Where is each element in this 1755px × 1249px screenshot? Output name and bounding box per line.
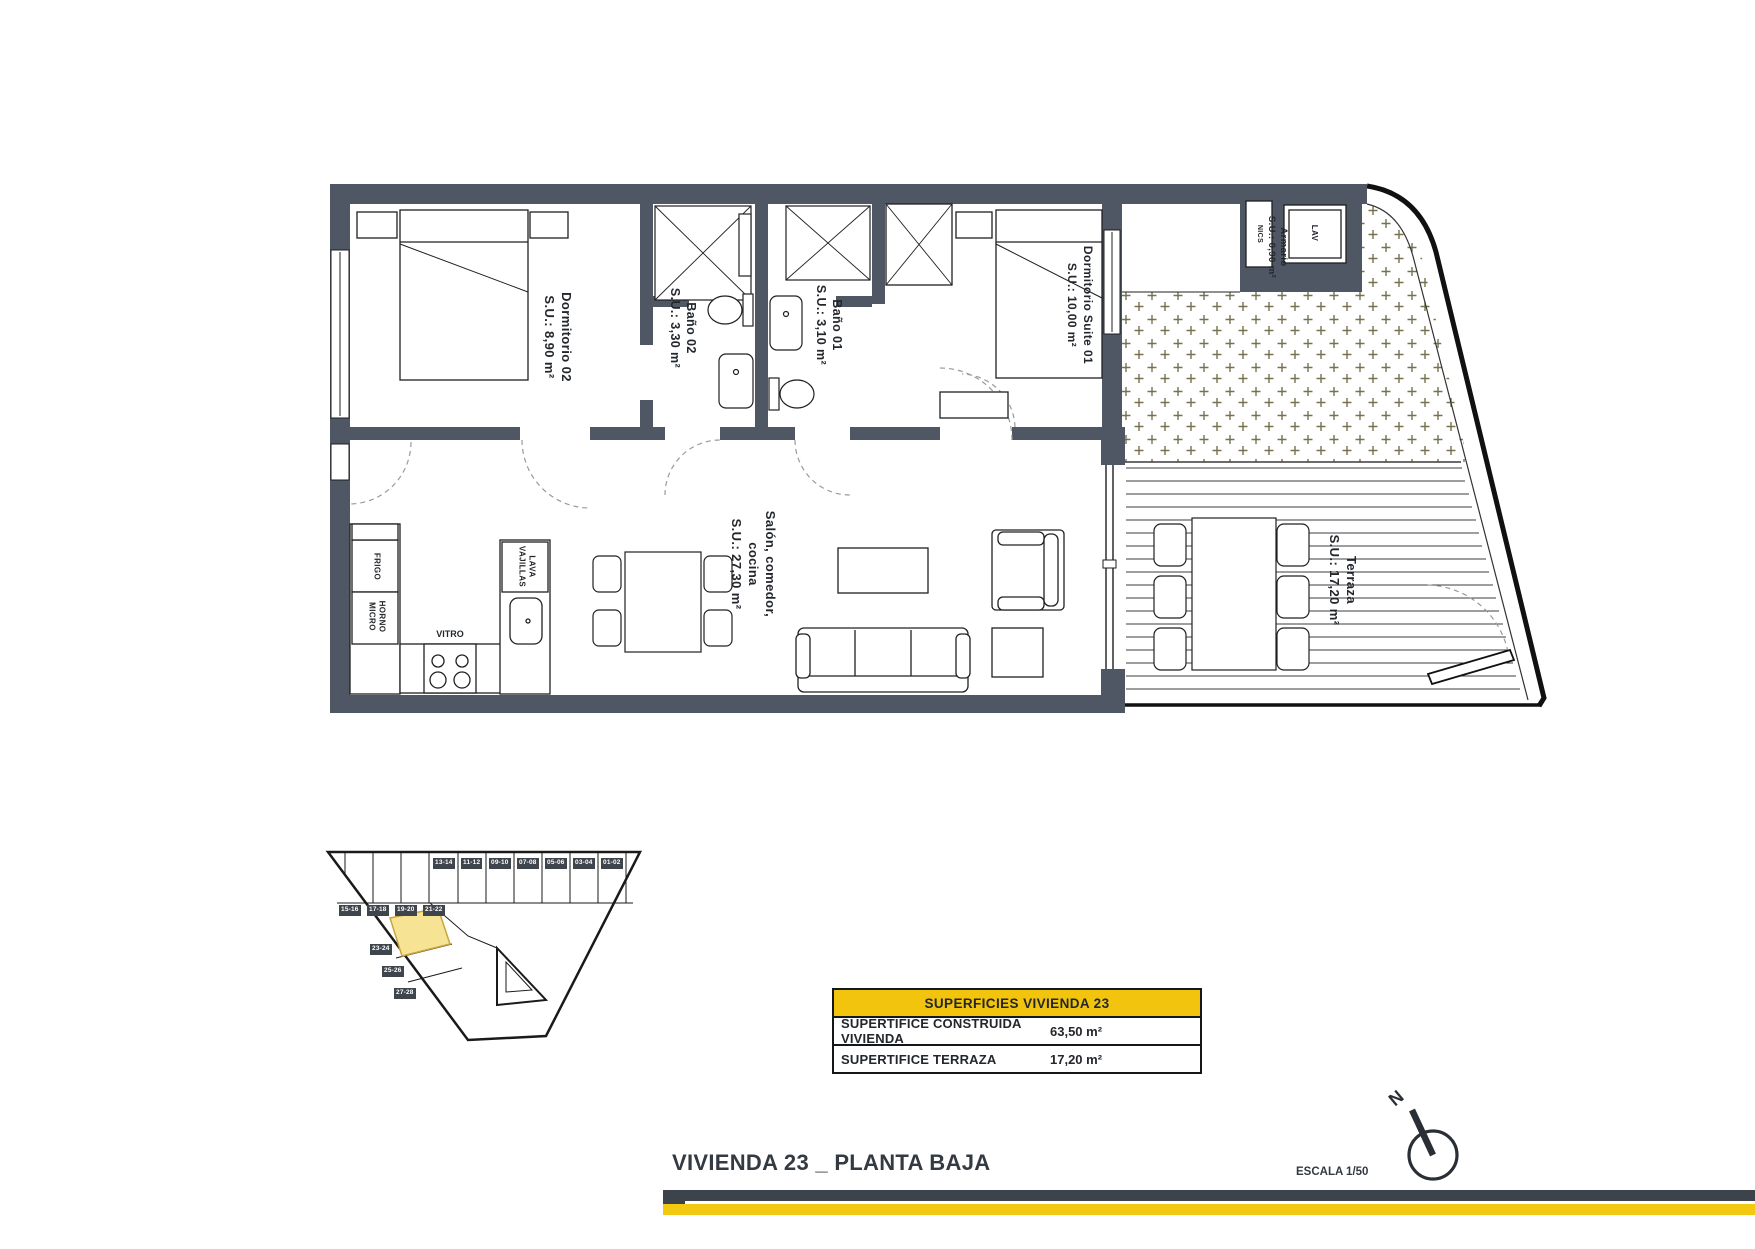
room-label-bano02: Baño 02S.U.: 3,30 m² bbox=[665, 273, 699, 383]
site-unit-tag: 23-24 bbox=[370, 944, 392, 955]
room-label-salon: Salón, comedor,cocinaS.U.: 27,30 m² bbox=[728, 494, 778, 634]
room-label-terraza: TerrazaS.U.: 17,20 m² bbox=[1325, 510, 1359, 650]
living-furniture bbox=[796, 530, 1064, 692]
washer-label: LAV bbox=[1309, 213, 1319, 253]
scale-label: ESCALA 1/50 bbox=[1296, 1166, 1368, 1178]
site-unit-tag: 01-02 bbox=[601, 858, 623, 869]
table-row: SUPERTIFICE CONSTRUIDA VIVIENDA 63,50 m² bbox=[834, 1018, 1200, 1044]
room-label-bano01: Baño 01S.U.: 3,10 m² bbox=[811, 270, 845, 380]
room-label-dormitorio02: Dormitorio 02S.U.: 8,90 m² bbox=[540, 267, 574, 407]
row-value: 17,20 m² bbox=[1050, 1052, 1200, 1067]
footer-bar-dark bbox=[663, 1190, 1755, 1201]
site-unit-tag: 13-14 bbox=[433, 858, 455, 869]
bedroom2-furniture bbox=[357, 210, 568, 380]
niche-label: NICS bbox=[1254, 209, 1264, 259]
site-unit-tag: 15-16 bbox=[339, 905, 361, 916]
summary-table-header: SUPERFICIES VIVIENDA 23 bbox=[834, 990, 1200, 1018]
plan-sheet: Dormitorio 02S.U.: 8,90 m² Baño 02S.U.: … bbox=[0, 0, 1755, 1249]
site-unit-tag: 09-10 bbox=[489, 858, 511, 869]
oven-micro-label: HORNOMICRO bbox=[366, 587, 387, 647]
site-unit-tag: 17-18 bbox=[367, 905, 389, 916]
terrace-set bbox=[1154, 518, 1309, 670]
site-unit-tag: 07-08 bbox=[517, 858, 539, 869]
room-label-armario: ArmarioS.U.: 0,90 m² bbox=[1261, 197, 1289, 297]
row-value: 63,50 m² bbox=[1050, 1024, 1200, 1039]
site-unit-tag: 21-22 bbox=[423, 905, 445, 916]
row-label: SUPERTIFICE CONSTRUIDA VIVIENDA bbox=[834, 1016, 1050, 1046]
site-unit-tag: 03-04 bbox=[573, 858, 595, 869]
site-unit-tag: 25-26 bbox=[382, 966, 404, 977]
site-unit-tag: 11-12 bbox=[461, 858, 482, 869]
room-label-suite01: Dormitorio Suite 01S.U.: 10,00 m² bbox=[1061, 230, 1095, 380]
site-unit-tag: 19-20 bbox=[395, 905, 417, 916]
dishwasher-label: LAVAVAJILLAS bbox=[516, 537, 537, 597]
site-unit-tag: 05-06 bbox=[545, 858, 567, 869]
site-unit-tag: 27-28 bbox=[394, 988, 416, 999]
footer-bar-yellow bbox=[663, 1204, 1755, 1215]
surface-summary-table: SUPERFICIES VIVIENDA 23 SUPERTIFICE CONS… bbox=[832, 988, 1202, 1074]
north-arrow-icon bbox=[1409, 1110, 1457, 1179]
hob-label: VITRO bbox=[424, 629, 476, 639]
sheet-title: VIVIENDA 23 _ PLANTA BAJA bbox=[672, 1150, 990, 1176]
dining-set bbox=[593, 552, 732, 652]
table-row: SUPERTIFICE TERRAZA 17,20 m² bbox=[834, 1044, 1200, 1072]
row-label: SUPERTIFICE TERRAZA bbox=[834, 1052, 1050, 1067]
